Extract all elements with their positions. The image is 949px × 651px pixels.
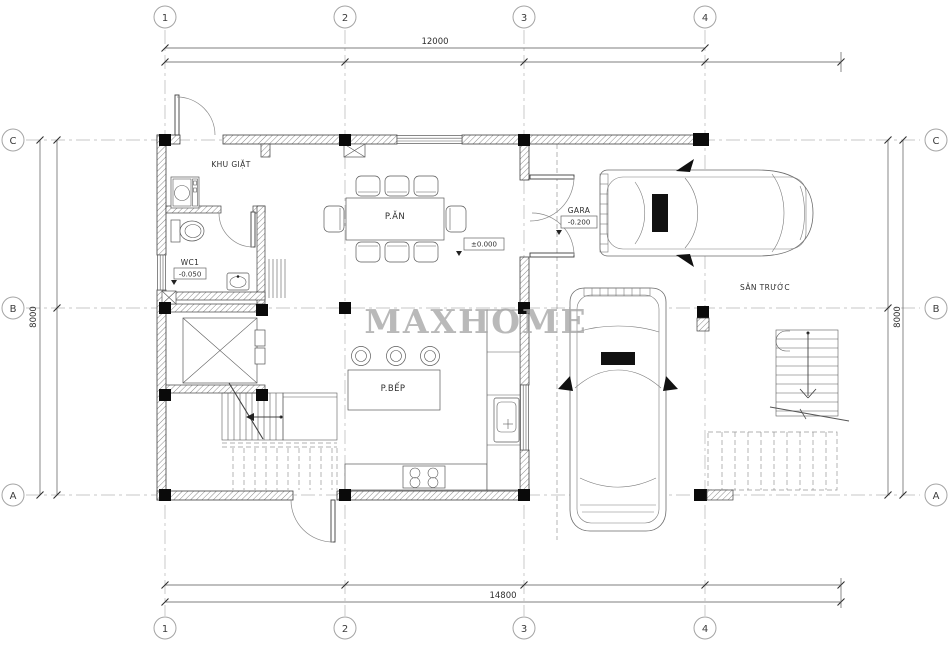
grid-bubble-col2-top: 2 — [334, 6, 356, 28]
rear-door — [291, 500, 335, 542]
window-right — [521, 385, 529, 450]
room-label-garage: GARA — [568, 206, 591, 215]
stair-exterior — [708, 330, 849, 490]
level-dining: ±0.000 — [471, 241, 497, 249]
grid-bubble-col3-bottom: 3 — [513, 617, 535, 639]
grid-bubble-rowB-right: B — [925, 297, 947, 319]
svg-text:3: 3 — [521, 624, 527, 635]
grid-bubble-col3-top: 3 — [513, 6, 535, 28]
stove — [403, 466, 445, 488]
garage-top-wall — [529, 135, 695, 144]
floor-plan-canvas: 12000 14800 8000 8000 — [0, 0, 949, 651]
floor-plan-svg: 12000 14800 8000 8000 — [0, 0, 949, 651]
room-label-front-yard: SÂN TRƯỚC — [740, 283, 790, 292]
room-label-kitchen: P.BẾP — [381, 382, 406, 394]
wc-sink — [227, 273, 249, 290]
svg-text:3: 3 — [521, 13, 527, 24]
svg-text:2: 2 — [342, 13, 348, 24]
level-garage: -0.200 — [568, 219, 591, 227]
svg-text:4: 4 — [702, 624, 708, 635]
bar-stools — [352, 347, 440, 366]
dim-top-value: 12000 — [421, 37, 448, 47]
dimension-bottom: 14800 — [162, 578, 845, 608]
svg-text:C: C — [933, 136, 940, 147]
wc-door — [219, 212, 255, 247]
grid-bubble-col4-bottom: 4 — [694, 617, 716, 639]
grid-bubble-rowA-left: A — [2, 484, 24, 506]
dim-left-value: 8000 — [29, 306, 39, 328]
dim-bottom-value: 14800 — [489, 591, 516, 601]
grid-bubble-col2-bottom: 2 — [334, 617, 356, 639]
svg-text:1: 1 — [162, 13, 168, 24]
dimension-right: 8000 — [885, 137, 907, 499]
grid-bubble-col4-top: 4 — [694, 6, 716, 28]
stair-interior — [222, 383, 337, 490]
room-label-laundry: KHU GIẶT — [211, 160, 250, 169]
svg-text:A: A — [10, 491, 17, 502]
window-top — [397, 136, 462, 144]
grid-bubble-rowB-left: B — [2, 297, 24, 319]
room-label-wc: WC1 — [181, 258, 200, 267]
level-wc: -0.050 — [179, 271, 202, 279]
svg-text:1: 1 — [162, 624, 168, 635]
grid-bubble-rowC-right: C — [925, 129, 947, 151]
dim-right-value: 8000 — [893, 306, 903, 328]
room-label-dining: P.ĂN — [385, 210, 405, 222]
grid-bubble-rowC-left: C — [2, 129, 24, 151]
grid-bubble-rowA-right: A — [925, 484, 947, 506]
entry-door — [175, 95, 215, 135]
svg-text:C: C — [10, 136, 17, 147]
dimension-top: 12000 — [162, 37, 845, 72]
svg-text:A: A — [933, 491, 940, 502]
svg-text:B: B — [10, 304, 17, 315]
car-garage — [600, 159, 813, 267]
washing-machine — [171, 177, 199, 208]
kitchen-sink — [494, 398, 519, 442]
svg-text:2: 2 — [342, 624, 348, 635]
grid-bubble-col1-bottom: 1 — [154, 617, 176, 639]
watermark-text: MAXHOME — [364, 302, 587, 341]
dimension-left: 8000 — [29, 137, 61, 499]
window-left — [158, 255, 166, 290]
grid-bubble-col1-top: 1 — [154, 6, 176, 28]
svg-text:B: B — [933, 304, 940, 315]
elevator — [183, 318, 265, 383]
toilet — [171, 220, 204, 242]
louver-lines — [269, 259, 285, 298]
svg-text:4: 4 — [702, 13, 708, 24]
